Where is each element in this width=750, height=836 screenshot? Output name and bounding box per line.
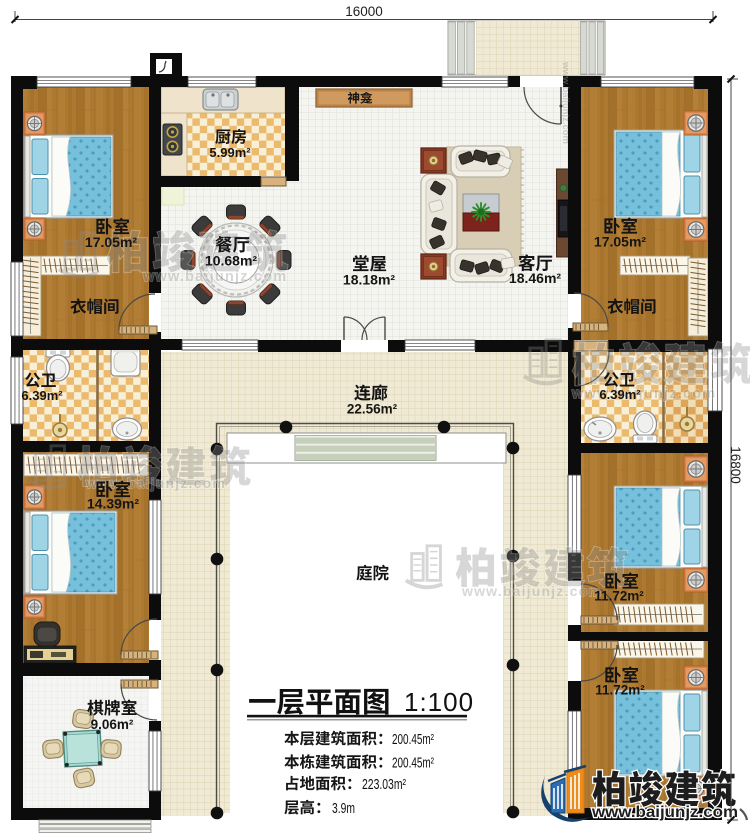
svg-text:6.39m²: 6.39m²	[599, 387, 641, 402]
svg-text:16000: 16000	[345, 4, 383, 19]
svg-text:www.baijunjz.com: www.baijunjz.com	[560, 61, 571, 144]
svg-text:1:100: 1:100	[404, 687, 474, 717]
svg-text:11.72m²: 11.72m²	[595, 683, 645, 698]
svg-text:18.18m²: 18.18m²	[343, 272, 395, 288]
svg-text:5.99m²: 5.99m²	[209, 145, 251, 160]
svg-text:9.06m²: 9.06m²	[91, 717, 134, 732]
svg-text:18.46m²: 18.46m²	[509, 270, 561, 286]
svg-text:10.68m²: 10.68m²	[205, 253, 257, 269]
svg-text:6.39m²: 6.39m²	[21, 388, 63, 403]
svg-text:200.45m²: 200.45m²	[392, 732, 434, 748]
svg-text:www.baijunjz.com: www.baijunjz.com	[142, 269, 287, 285]
svg-text:17.05m²: 17.05m²	[594, 234, 646, 250]
svg-text:www.baijunjz.com: www.baijunjz.com	[461, 583, 602, 599]
svg-text:22.56m²: 22.56m²	[347, 402, 398, 417]
svg-text:14.39m²: 14.39m²	[87, 496, 139, 512]
svg-text:3.9m: 3.9m	[332, 801, 355, 817]
svg-text:200.45m²: 200.45m²	[392, 756, 434, 772]
svg-text:223.03m²: 223.03m²	[362, 777, 406, 793]
svg-text:11.72m²: 11.72m²	[594, 589, 644, 604]
svg-text:16800: 16800	[728, 446, 743, 484]
svg-text:www.baijunjz.com: www.baijunjz.com	[591, 804, 738, 821]
svg-text:www.baijunjz.com: www.baijunjz.com	[85, 475, 226, 491]
svg-text:17.05m²: 17.05m²	[85, 234, 137, 250]
svg-text:www.baijunjz.com: www.baijunjz.com	[571, 386, 716, 402]
